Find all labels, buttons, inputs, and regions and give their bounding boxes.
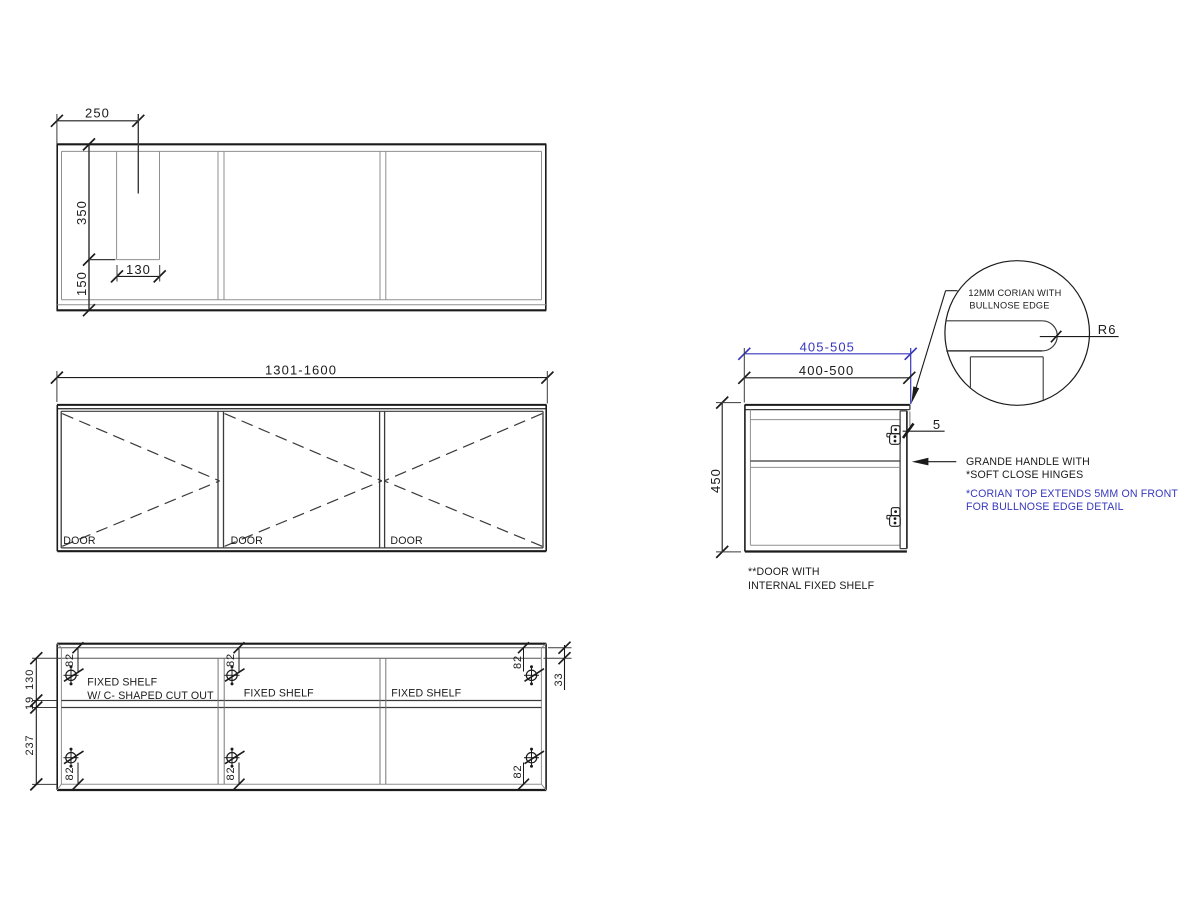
svg-text:33: 33	[553, 672, 565, 686]
svg-text:FOR BULLNOSE EDGE DETAIL: FOR BULLNOSE EDGE DETAIL	[966, 501, 1124, 513]
svg-text:1301-1600: 1301-1600	[265, 363, 337, 378]
svg-text:130: 130	[126, 262, 151, 277]
svg-text:DOOR: DOOR	[390, 535, 423, 547]
svg-text:250: 250	[85, 105, 110, 120]
svg-text:R6: R6	[1098, 322, 1117, 337]
svg-text:GRANDE HANDLE WITH: GRANDE HANDLE WITH	[966, 456, 1090, 468]
svg-text:350: 350	[74, 200, 89, 225]
svg-text:FIXED SHELF: FIXED SHELF	[244, 687, 314, 699]
svg-text:*CORIAN TOP EXTENDS 5MM ON FRO: *CORIAN TOP EXTENDS 5MM ON FRONT	[966, 488, 1178, 500]
svg-text:W/ C- SHAPED CUT OUT: W/ C- SHAPED CUT OUT	[87, 690, 214, 702]
svg-text:19: 19	[24, 696, 36, 710]
svg-text:82: 82	[225, 653, 237, 667]
svg-text:DOOR: DOOR	[63, 535, 96, 547]
svg-text:82: 82	[64, 653, 76, 667]
svg-text:FIXED SHELF: FIXED SHELF	[87, 677, 157, 689]
svg-text:82: 82	[64, 766, 76, 780]
svg-text:FIXED SHELF: FIXED SHELF	[391, 687, 461, 699]
svg-text:INTERNAL FIXED SHELF: INTERNAL FIXED SHELF	[748, 580, 875, 592]
svg-text:400-500: 400-500	[799, 363, 854, 378]
svg-text:150: 150	[74, 271, 89, 296]
svg-text:5: 5	[933, 417, 941, 432]
svg-text:130: 130	[24, 669, 36, 690]
svg-text:82: 82	[512, 764, 524, 778]
svg-text:BULLNOSE EDGE: BULLNOSE EDGE	[969, 300, 1049, 310]
svg-text:405-505: 405-505	[800, 339, 855, 354]
svg-text:*SOFT CLOSE HINGES: *SOFT CLOSE HINGES	[966, 469, 1083, 481]
svg-text:82: 82	[225, 766, 237, 780]
svg-text:450: 450	[708, 468, 723, 493]
svg-text:**DOOR WITH: **DOOR WITH	[748, 566, 820, 578]
svg-text:237: 237	[24, 734, 36, 755]
svg-text:12MM CORIAN WITH: 12MM CORIAN WITH	[968, 288, 1061, 298]
svg-text:82: 82	[512, 655, 524, 669]
svg-text:DOOR: DOOR	[231, 535, 264, 547]
